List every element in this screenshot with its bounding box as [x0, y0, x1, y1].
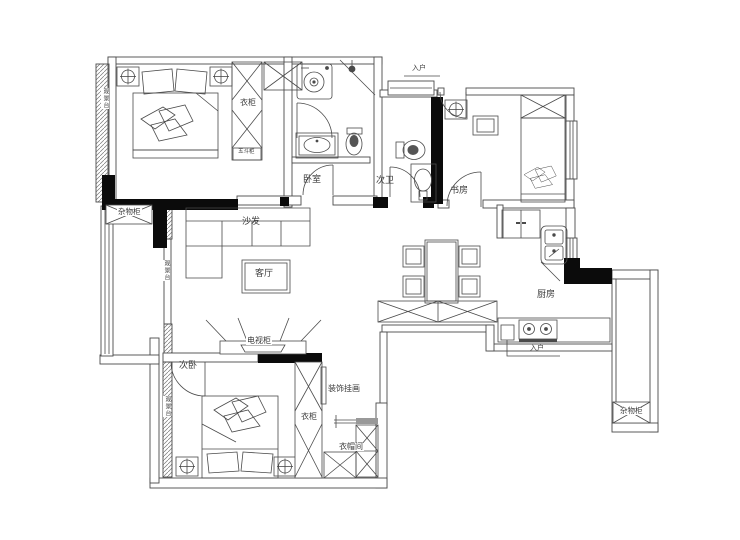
single-bed	[521, 118, 565, 202]
annotation-balcony-top: 观景台	[101, 88, 109, 109]
annotation-entry-bottom: 入户	[530, 345, 544, 352]
room-label-kitchen: 厨房	[537, 291, 555, 300]
shower-head-icon	[349, 66, 355, 72]
furniture-label-sofa: 沙发	[242, 218, 260, 227]
sideboard	[378, 301, 497, 322]
room-label-living-room: 客厅	[255, 270, 273, 279]
shower-door	[340, 60, 375, 95]
room-label-master-bedroom: 卧室	[303, 176, 321, 185]
dining-furniture	[378, 240, 497, 322]
downlight-icon	[176, 457, 198, 476]
furniture-label-tv-cabinet: 电视柜	[246, 337, 272, 345]
living-room-furniture	[186, 208, 321, 354]
annotation-balcony-mid: 观景台	[162, 260, 170, 281]
furniture-label-master-wardrobe: 衣柜	[239, 99, 257, 107]
pillow-icon	[175, 69, 207, 94]
floor-plan-drawing	[0, 0, 740, 540]
kitchen-counter	[498, 318, 610, 342]
downlight-icon	[274, 457, 296, 476]
master-bed	[133, 93, 218, 150]
bed-cushions	[141, 105, 193, 141]
bed-footboard	[133, 150, 218, 158]
floor-plan: 卧室 次卫 书房 沙发 客厅 电视柜 次卧 衣柜 五斗柜 衣柜 装饰挂画 衣帽间…	[0, 0, 740, 540]
second-bed	[202, 396, 278, 478]
downlight-icon	[117, 67, 139, 86]
room-label-second-bedroom: 次卧	[179, 362, 197, 371]
master-bathroom-fixtures	[296, 60, 375, 158]
downlight-icon	[445, 100, 467, 119]
room-label-guest-bathroom: 次卫	[376, 177, 394, 186]
furniture-label-storage-right: 杂物柜	[619, 407, 644, 415]
furniture-label-chest: 五斗柜	[238, 150, 255, 156]
downlight-icon	[210, 67, 232, 86]
room-label-cloakroom: 衣帽间	[338, 443, 364, 451]
flue-box	[501, 325, 514, 340]
pillow-icon	[241, 452, 273, 473]
furniture-label-decorative-painting: 装饰挂画	[328, 385, 360, 393]
room-label-study: 书房	[450, 187, 468, 196]
master-bedroom-furniture	[117, 62, 302, 160]
master-wardrobe	[232, 62, 262, 160]
pillow-icon	[207, 452, 239, 473]
dining-table	[425, 240, 458, 303]
bed-cushions	[524, 166, 556, 188]
annotation-balcony-bottom: 观景台	[163, 396, 171, 417]
pillow-icon	[142, 69, 174, 94]
guest-bathroom-fixtures	[396, 141, 436, 203]
bed-cushions	[214, 396, 266, 432]
furniture-label-storage-left: 杂物柜	[117, 208, 142, 216]
furniture-label-second-wardrobe: 衣柜	[300, 413, 318, 421]
annotation-entry-top: 入户	[412, 65, 426, 72]
